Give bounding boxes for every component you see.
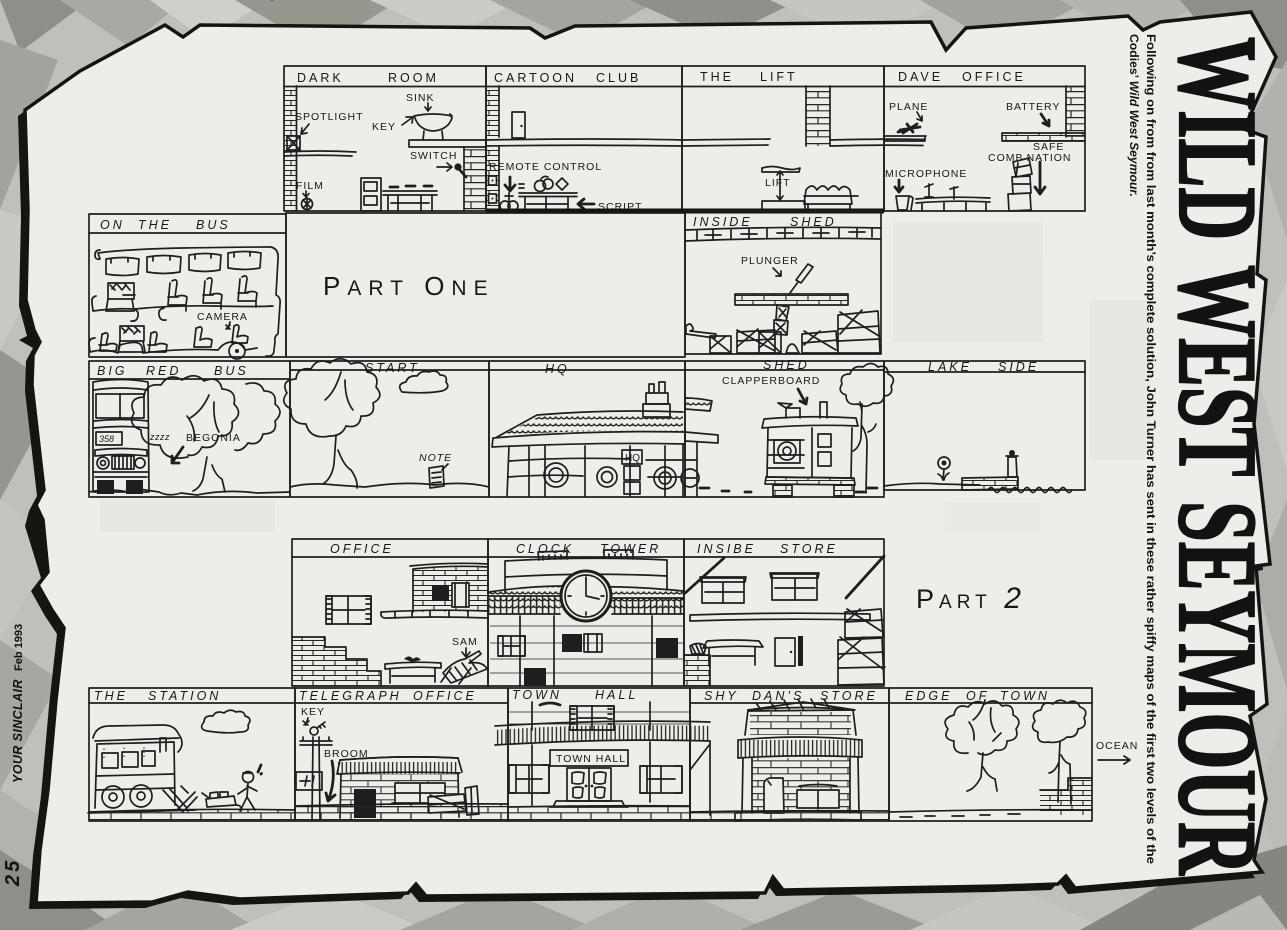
- svg-text:START: START: [365, 361, 420, 375]
- svg-text:BIG: BIG: [97, 364, 128, 378]
- svg-text:RED: RED: [146, 364, 181, 378]
- svg-text:DAVE: DAVE: [898, 70, 943, 84]
- svg-text:EDGE: EDGE: [905, 689, 952, 703]
- svg-text:CLOCK: CLOCK: [516, 542, 574, 556]
- svg-text:TELEGRAPH: TELEGRAPH: [299, 689, 402, 703]
- svg-text:STATION: STATION: [148, 689, 221, 703]
- svg-text:DARK: DARK: [297, 71, 344, 85]
- svg-text:STORE: STORE: [780, 542, 838, 556]
- svg-text:KEY: KEY: [372, 121, 396, 133]
- svg-text:OCEAN: OCEAN: [1096, 740, 1138, 752]
- svg-text:THE: THE: [700, 70, 734, 84]
- svg-text:HQ: HQ: [625, 453, 640, 464]
- svg-text:BATTERY: BATTERY: [1006, 101, 1060, 113]
- svg-text:THE: THE: [94, 689, 128, 703]
- svg-text:OFFICE: OFFICE: [413, 689, 477, 703]
- svg-text:LIFT: LIFT: [765, 177, 791, 189]
- svg-text:SWITCH: SWITCH: [410, 150, 457, 162]
- svg-text:Following on from from last mo: Following on from from last month’s comp…: [1144, 34, 1158, 864]
- svg-text:TOWN: TOWN: [512, 688, 562, 702]
- svg-text:zzzz: zzzz: [149, 432, 170, 442]
- svg-text:LAKE: LAKE: [928, 360, 972, 374]
- svg-text:SINK: SINK: [406, 92, 435, 104]
- svg-text:FILM: FILM: [296, 180, 324, 192]
- svg-text:WILD WEST SEYMOUR: WILD WEST SEYMOUR: [1155, 37, 1279, 876]
- svg-text:CAMERA: CAMERA: [197, 311, 248, 323]
- svg-text:YOUR SINCLAIR: YOUR SINCLAIR: [11, 679, 25, 783]
- svg-text:Codies’ Wild West Seymour.: Codies’ Wild West Seymour.: [1127, 34, 1141, 197]
- svg-text:OFFICE: OFFICE: [962, 70, 1026, 84]
- svg-text:358: 358: [99, 434, 114, 444]
- svg-text:25: 25: [2, 858, 24, 887]
- svg-text:KEY: KEY: [301, 706, 325, 718]
- svg-text:INSIBE: INSIBE: [697, 542, 756, 556]
- svg-text:SHY: SHY: [704, 689, 739, 703]
- svg-text:SIDE: SIDE: [998, 360, 1039, 374]
- svg-text:TOWN HALL: TOWN HALL: [556, 753, 626, 765]
- svg-text:OFFICE: OFFICE: [330, 542, 394, 556]
- svg-text:NOTE: NOTE: [419, 452, 452, 464]
- svg-text:ROOM: ROOM: [388, 71, 439, 85]
- svg-text:MICROPHONE: MICROPHONE: [885, 168, 967, 180]
- svg-text:REMOTE CONTROL: REMOTE CONTROL: [489, 161, 602, 173]
- svg-text:SHED: SHED: [763, 358, 810, 372]
- svg-text:CLAPPERBOARD: CLAPPERBOARD: [722, 375, 820, 387]
- svg-text:DAN’S: DAN’S: [752, 689, 805, 703]
- svg-text:BEGONIA: BEGONIA: [186, 432, 241, 444]
- svg-text:STORE: STORE: [820, 689, 878, 703]
- svg-text:BUS: BUS: [196, 218, 231, 232]
- svg-text:INSIDE: INSIDE: [693, 215, 753, 229]
- svg-text:TOWN: TOWN: [1000, 689, 1050, 703]
- svg-text:ON: ON: [100, 218, 125, 232]
- svg-text:LIFT: LIFT: [760, 70, 798, 84]
- svg-text:HQ: HQ: [545, 362, 570, 376]
- svg-text:CARTOON: CARTOON: [494, 71, 577, 85]
- svg-text:CLUB: CLUB: [596, 71, 641, 85]
- svg-text:SAM: SAM: [452, 636, 478, 648]
- svg-text:HALL: HALL: [595, 688, 638, 702]
- svg-text:BUS: BUS: [214, 364, 249, 378]
- svg-text:THE: THE: [138, 218, 172, 232]
- svg-text:SPOTLIGHT: SPOTLIGHT: [295, 111, 364, 123]
- svg-text:Feb 1993: Feb 1993: [13, 624, 25, 671]
- svg-text:PLUNGER: PLUNGER: [741, 255, 799, 267]
- svg-text:PLANE: PLANE: [889, 101, 928, 113]
